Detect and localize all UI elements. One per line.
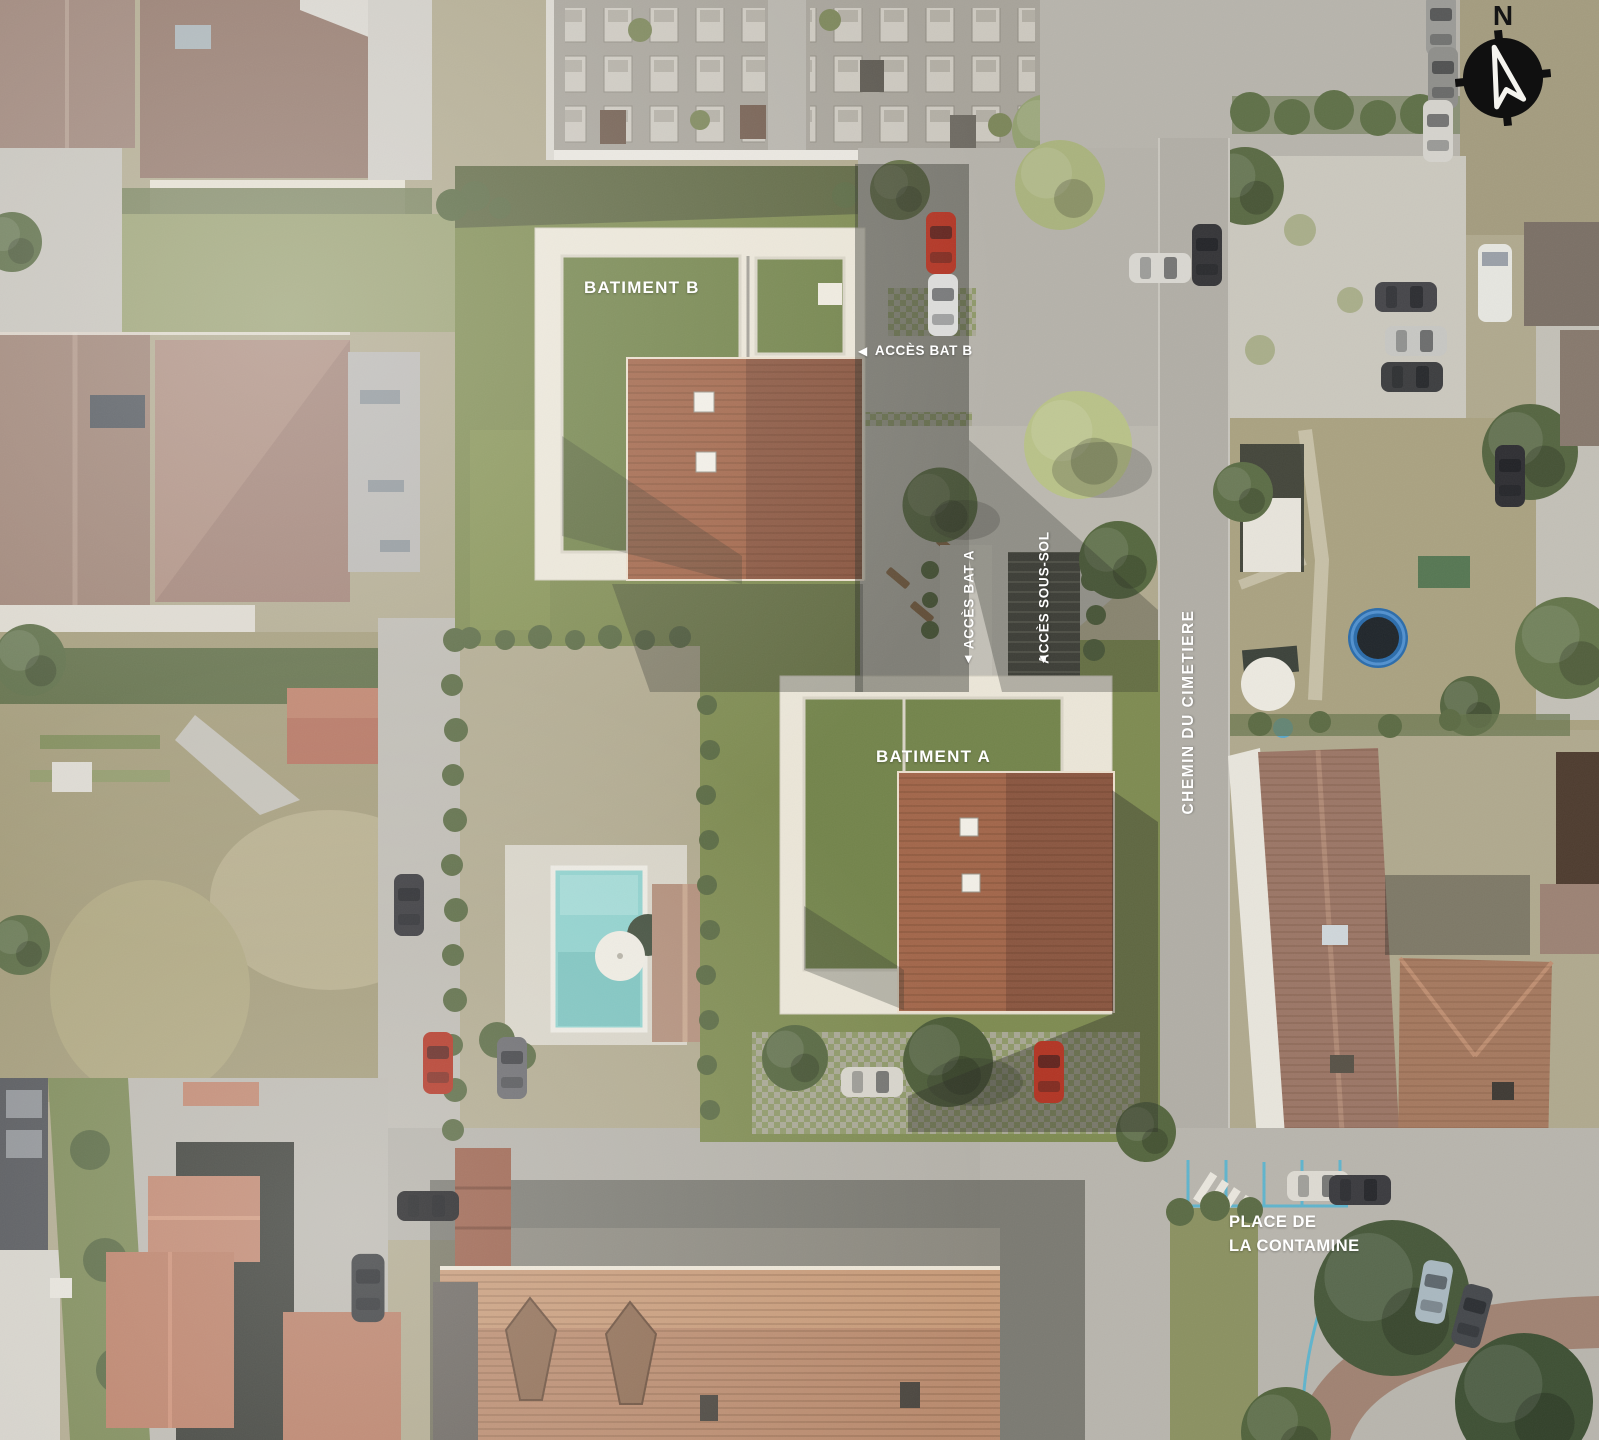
site-plan-aerial-view: BATIMENT B BATIMENT A ◀ ACCÈS BAT B ACCÈ…	[0, 0, 1599, 1440]
place-line2: LA CONTAMINE	[1229, 1237, 1360, 1255]
acces-bat-b-text: ACCÈS BAT B	[875, 343, 973, 358]
label-acces-sous-sol: ACCÈS SOUS-SOL	[1037, 523, 1052, 673]
arrow-down-icon: ▼	[1037, 651, 1050, 666]
label-batiment-b: BATIMENT B	[584, 278, 700, 298]
label-acces-bat-b: ◀ ACCÈS BAT B	[858, 343, 973, 358]
label-acces-bat-a: ACCÈS BAT A	[962, 540, 977, 660]
compass-north-label: N	[1448, 2, 1558, 30]
place-line1: PLACE DE	[1229, 1213, 1316, 1231]
arrow-left-icon: ◀	[858, 345, 868, 357]
compass: N	[1448, 2, 1558, 131]
label-chemin-du-cimetiere: CHEMIN DU CIMETIERE	[1180, 607, 1198, 817]
arrow-down-icon: ▼	[962, 651, 975, 666]
label-batiment-a: BATIMENT A	[876, 747, 991, 767]
label-place-de-la-contamine: PLACE DE LA CONTAMINE	[1229, 1211, 1429, 1259]
compass-icon	[1455, 30, 1551, 126]
